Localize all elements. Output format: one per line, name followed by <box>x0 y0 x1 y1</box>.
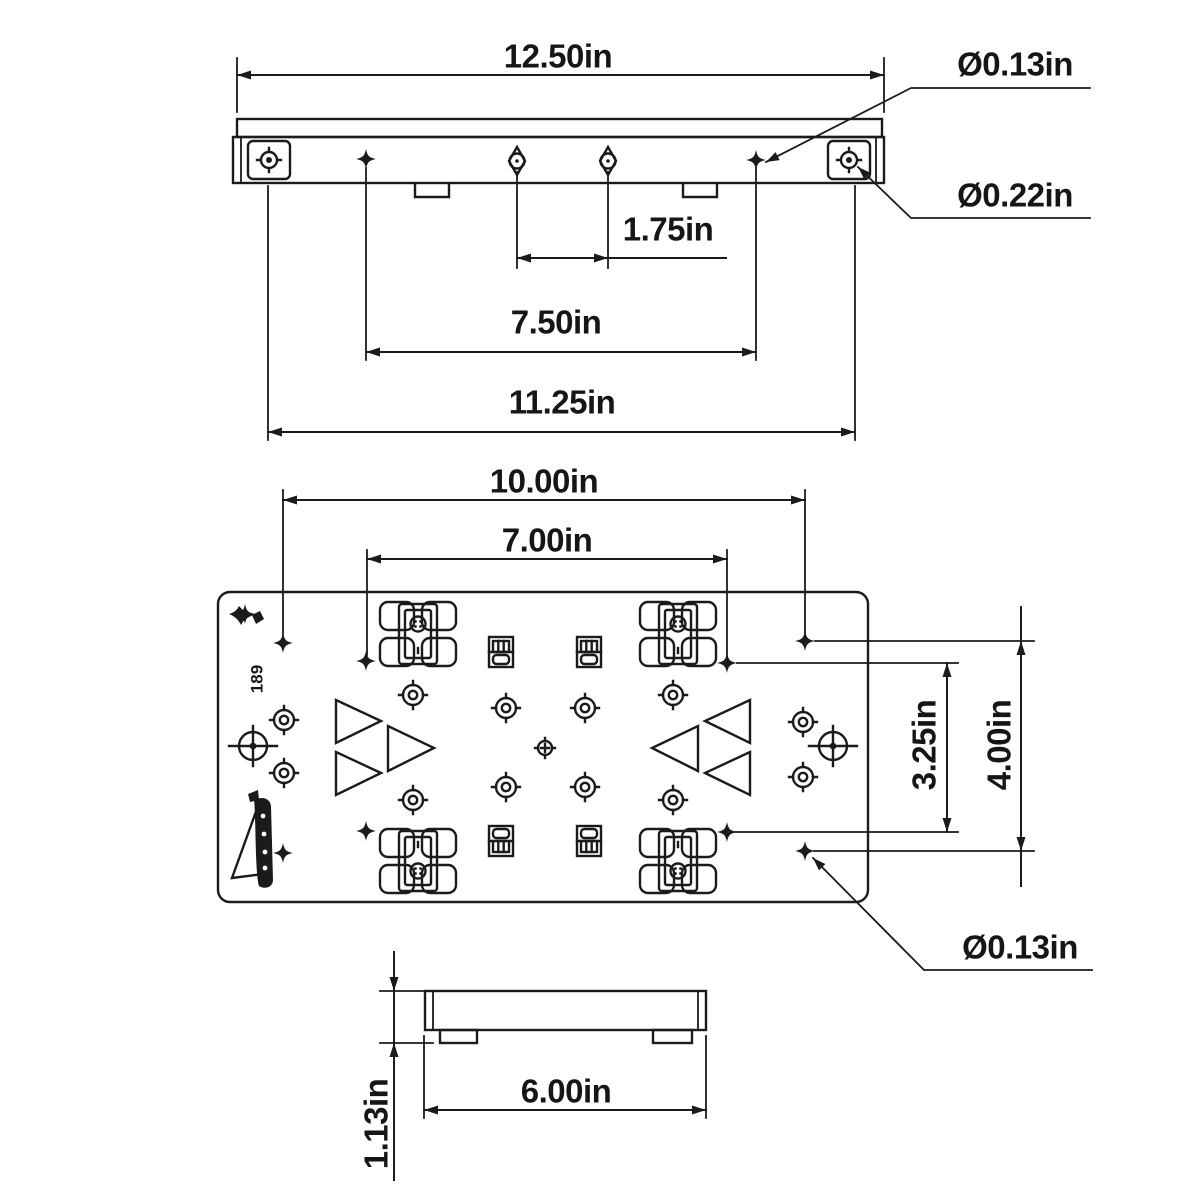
ring-screw-icon <box>492 694 520 722</box>
front-body <box>425 991 706 1030</box>
dim-label-feet-spacing: 6.00in <box>521 1075 612 1108</box>
crosshair-target-icon <box>809 726 857 766</box>
dim-label-outer-width: 10.00in <box>490 465 598 498</box>
ring-screw-icon <box>571 694 599 722</box>
countersunk-hole-icon <box>600 147 616 175</box>
dim-label-height: 1.13in <box>360 1079 393 1170</box>
top-view-drawing <box>218 490 1092 970</box>
technical-drawing-page: 12.50in Ø0.13in Ø0.22in 1.75in 7.50in 11… <box>0 0 1200 1200</box>
dia-label-large-hole: Ø0.22in <box>957 179 1073 212</box>
ring-screw-icon <box>659 681 687 709</box>
corner-mount-icon <box>640 829 716 893</box>
inner-hole-marker-icon <box>717 822 737 842</box>
ring-screw-icon <box>571 773 599 801</box>
side-right-tab <box>683 184 717 197</box>
side-top-flange <box>237 119 882 137</box>
connector-block-icon <box>489 637 513 667</box>
front-right-foot <box>653 1030 692 1043</box>
dim-label-inner-height: 3.25in <box>908 700 941 791</box>
corner-mount-icon <box>380 602 456 666</box>
ring-screw-icon <box>399 681 427 709</box>
triangle-vents-right <box>652 700 750 795</box>
connector-block-icon <box>577 637 601 667</box>
ring-screw-icon <box>492 773 520 801</box>
small-hole-marker-icon <box>746 150 766 170</box>
ring-screw-icon <box>399 786 427 814</box>
ring-screw-icon <box>270 706 298 734</box>
front-left-foot <box>440 1030 477 1043</box>
dia-label-corner-hole: Ø0.13in <box>962 931 1078 964</box>
leader-small-hole <box>766 88 1090 162</box>
screw-hole-icon <box>837 148 861 172</box>
ring-screw-icon <box>789 708 817 736</box>
screw-hole-icon <box>257 148 281 172</box>
side-body <box>233 137 884 183</box>
dim-label-overall-width: 12.50in <box>504 40 612 73</box>
small-hole-marker-icon <box>356 149 376 169</box>
plate-marking-text: 189 <box>249 665 266 693</box>
outer-hole-marker-icon <box>273 843 293 863</box>
dim-label-slot-spacing: 7.50in <box>511 306 602 339</box>
dim-label-outer-height: 4.00in <box>983 700 1016 791</box>
ring-screw-icon <box>270 759 298 787</box>
gator-logo <box>232 790 273 888</box>
side-view-drawing <box>233 58 1090 440</box>
center-screw-icon <box>535 738 555 758</box>
connector-block-icon <box>577 826 601 856</box>
small-logo-icon <box>229 604 264 625</box>
dia-label-small-hole: Ø0.13in <box>957 48 1073 81</box>
front-view-drawing <box>380 952 706 1180</box>
dim-label-end-spacing: 11.25in <box>509 386 616 419</box>
connector-block-icon <box>489 826 513 856</box>
corner-mount-icon <box>380 829 456 893</box>
inner-hole-marker-icon <box>356 651 376 671</box>
ring-screw-icon <box>789 763 817 791</box>
inner-hole-marker-icon <box>356 821 376 841</box>
triangle-vents-left <box>336 700 434 795</box>
ring-screw-icon <box>659 786 687 814</box>
countersunk-hole-icon <box>509 147 525 175</box>
crosshair-target-icon <box>229 726 277 766</box>
dim-label-center-spacing: 1.75in <box>623 213 714 246</box>
dim-label-inner-width: 7.00in <box>502 524 593 557</box>
corner-mount-icon <box>640 602 716 666</box>
side-left-tab <box>415 184 449 197</box>
